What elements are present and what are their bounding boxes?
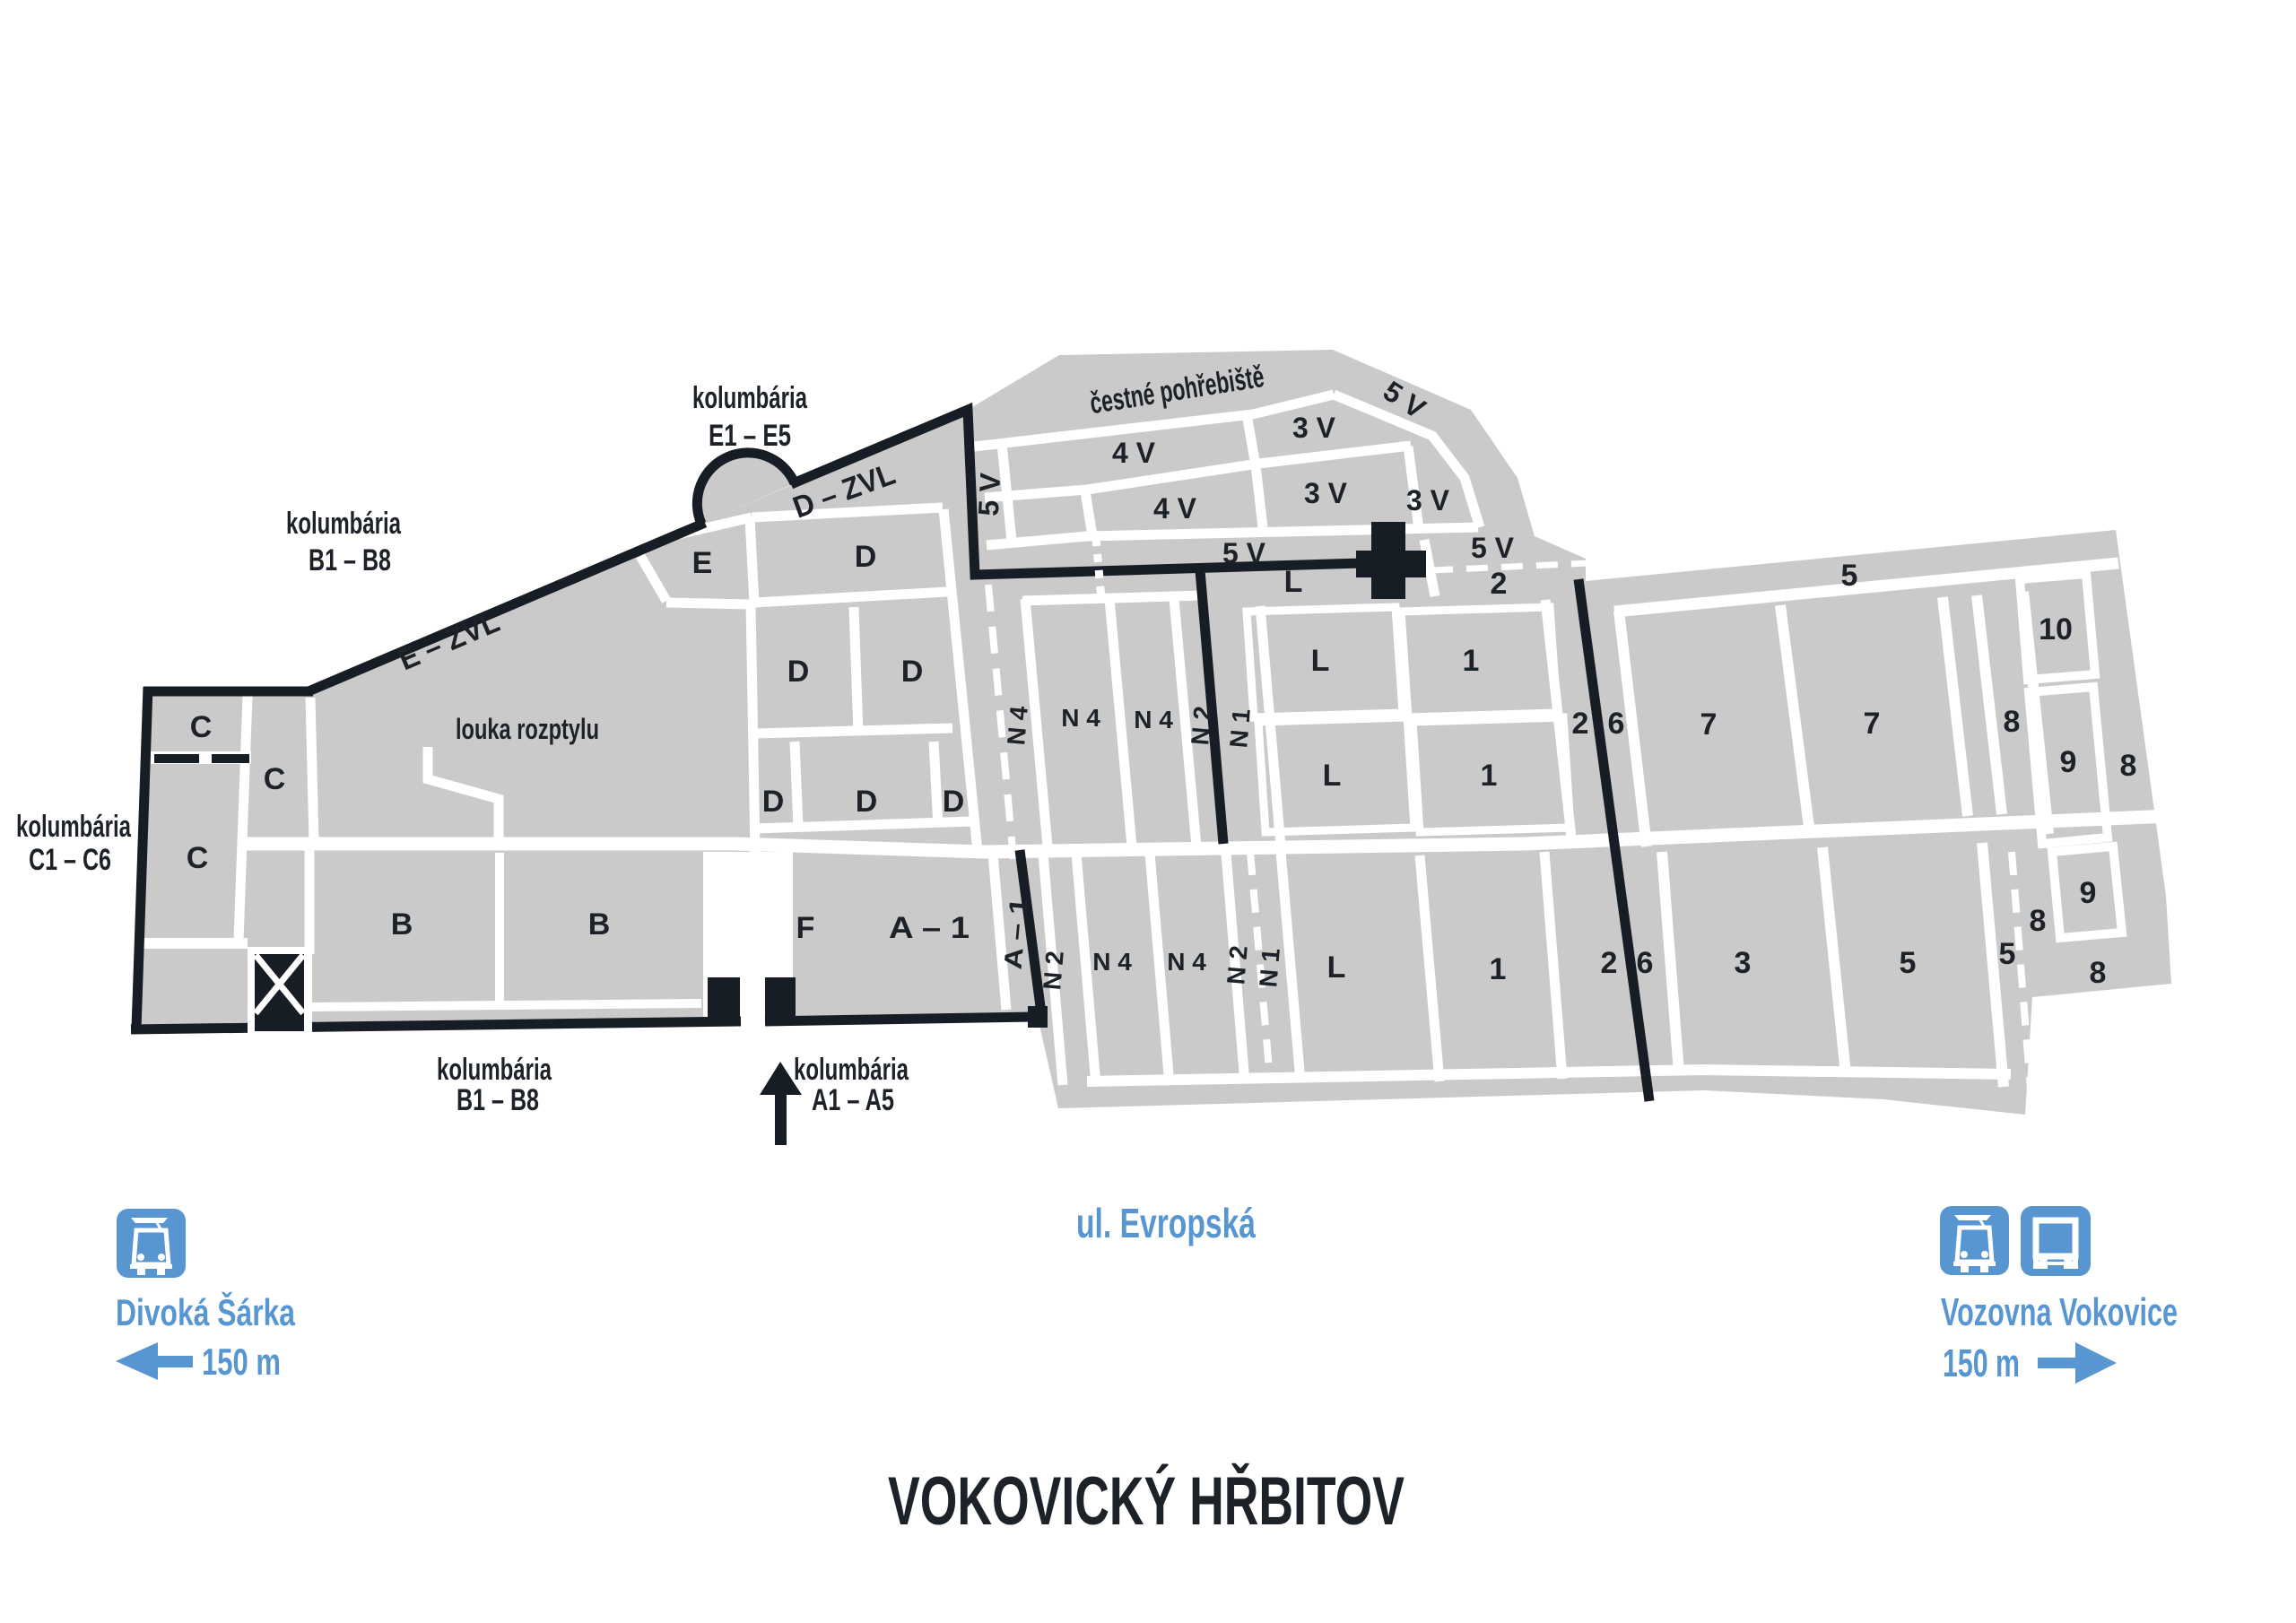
svg-text:E: E (692, 546, 713, 580)
svg-text:3 V: 3 V (1292, 412, 1336, 444)
svg-text:7: 7 (1864, 707, 1881, 741)
svg-text:L: L (1284, 565, 1303, 599)
svg-text:B1 – B8: B1 – B8 (457, 1083, 539, 1117)
svg-text:louka rozptylu: louka rozptylu (456, 713, 599, 745)
svg-text:Divoká Šárka: Divoká Šárka (116, 1290, 295, 1333)
svg-text:D: D (855, 540, 877, 574)
svg-text:5: 5 (1999, 937, 2016, 971)
svg-text:L: L (1323, 759, 1342, 793)
svg-text:5 V: 5 V (1222, 537, 1266, 569)
svg-text:2: 2 (1572, 707, 1589, 741)
svg-text:N 4: N 4 (1061, 704, 1100, 732)
svg-text:4 V: 4 V (1153, 492, 1197, 525)
svg-text:VOKOVICKÝ HŘBITOV: VOKOVICKÝ HŘBITOV (888, 1462, 1405, 1540)
svg-text:150 m: 150 m (202, 1341, 281, 1383)
svg-text:kolumbária: kolumbária (286, 507, 402, 541)
svg-text:A1 – A5: A1 – A5 (812, 1083, 894, 1117)
svg-text:3 V: 3 V (1304, 477, 1348, 509)
svg-text:kolumbária: kolumbária (437, 1053, 552, 1087)
svg-text:F: F (796, 911, 815, 945)
svg-text:D: D (787, 655, 810, 689)
svg-text:A – 1: A – 1 (889, 911, 970, 945)
svg-text:B: B (588, 907, 611, 942)
svg-text:N 1: N 1 (1224, 707, 1256, 749)
svg-text:B: B (391, 907, 413, 942)
svg-text:1: 1 (1490, 952, 1507, 986)
svg-text:kolumbária: kolumbária (794, 1053, 909, 1087)
svg-text:N 4: N 4 (1134, 706, 1173, 733)
svg-text:5: 5 (1841, 559, 1858, 593)
svg-text:L: L (1311, 644, 1330, 678)
svg-text:9: 9 (2060, 745, 2077, 779)
svg-text:C: C (190, 710, 213, 744)
svg-text:8: 8 (2120, 749, 2137, 783)
svg-text:N 4: N 4 (1167, 948, 1206, 976)
svg-text:150 m: 150 m (1943, 1341, 2020, 1385)
svg-text:B1 – B8: B1 – B8 (309, 543, 391, 577)
svg-text:D: D (901, 655, 924, 689)
svg-text:2: 2 (1601, 946, 1618, 980)
svg-text:5 V: 5 V (972, 472, 1006, 517)
svg-text:N 2: N 2 (1222, 944, 1253, 985)
svg-text:8: 8 (2090, 956, 2107, 990)
svg-text:ul. Evropská: ul. Evropská (1076, 1200, 1256, 1246)
svg-text:kolumbária: kolumbária (692, 381, 808, 415)
svg-text:N 4: N 4 (1002, 705, 1033, 747)
svg-text:3: 3 (1735, 946, 1752, 980)
svg-text:2: 2 (1491, 567, 1508, 601)
svg-text:D: D (943, 785, 965, 819)
svg-text:E1 – E5: E1 – E5 (709, 419, 791, 453)
svg-text:N 2: N 2 (1186, 705, 1217, 746)
svg-text:9: 9 (2080, 876, 2097, 910)
svg-text:1: 1 (1463, 644, 1480, 678)
svg-text:8: 8 (2004, 705, 2021, 739)
svg-text:10: 10 (2039, 612, 2073, 647)
svg-text:7: 7 (1700, 707, 1718, 742)
svg-text:Vozovna Vokovice: Vozovna Vokovice (1941, 1290, 2178, 1334)
svg-text:4 V: 4 V (1112, 437, 1156, 469)
svg-text:C1 – C6: C1 – C6 (29, 843, 111, 877)
svg-text:6: 6 (1637, 946, 1654, 980)
svg-text:N 1: N 1 (1254, 947, 1285, 988)
svg-text:5: 5 (1900, 946, 1917, 980)
svg-text:D: D (762, 785, 785, 819)
svg-text:kolumbária: kolumbária (16, 810, 132, 844)
svg-text:D: D (856, 785, 878, 819)
svg-text:3 V: 3 V (1406, 484, 1450, 516)
svg-text:C: C (187, 841, 209, 875)
svg-text:L: L (1327, 950, 1346, 985)
svg-text:6: 6 (1608, 707, 1625, 741)
svg-text:8: 8 (2030, 904, 2047, 938)
svg-text:5 V: 5 V (1471, 532, 1515, 564)
svg-text:C: C (264, 762, 286, 796)
svg-text:N 4: N 4 (1092, 948, 1132, 976)
svg-text:1: 1 (1481, 759, 1498, 793)
svg-text:N 2: N 2 (1038, 950, 1069, 991)
